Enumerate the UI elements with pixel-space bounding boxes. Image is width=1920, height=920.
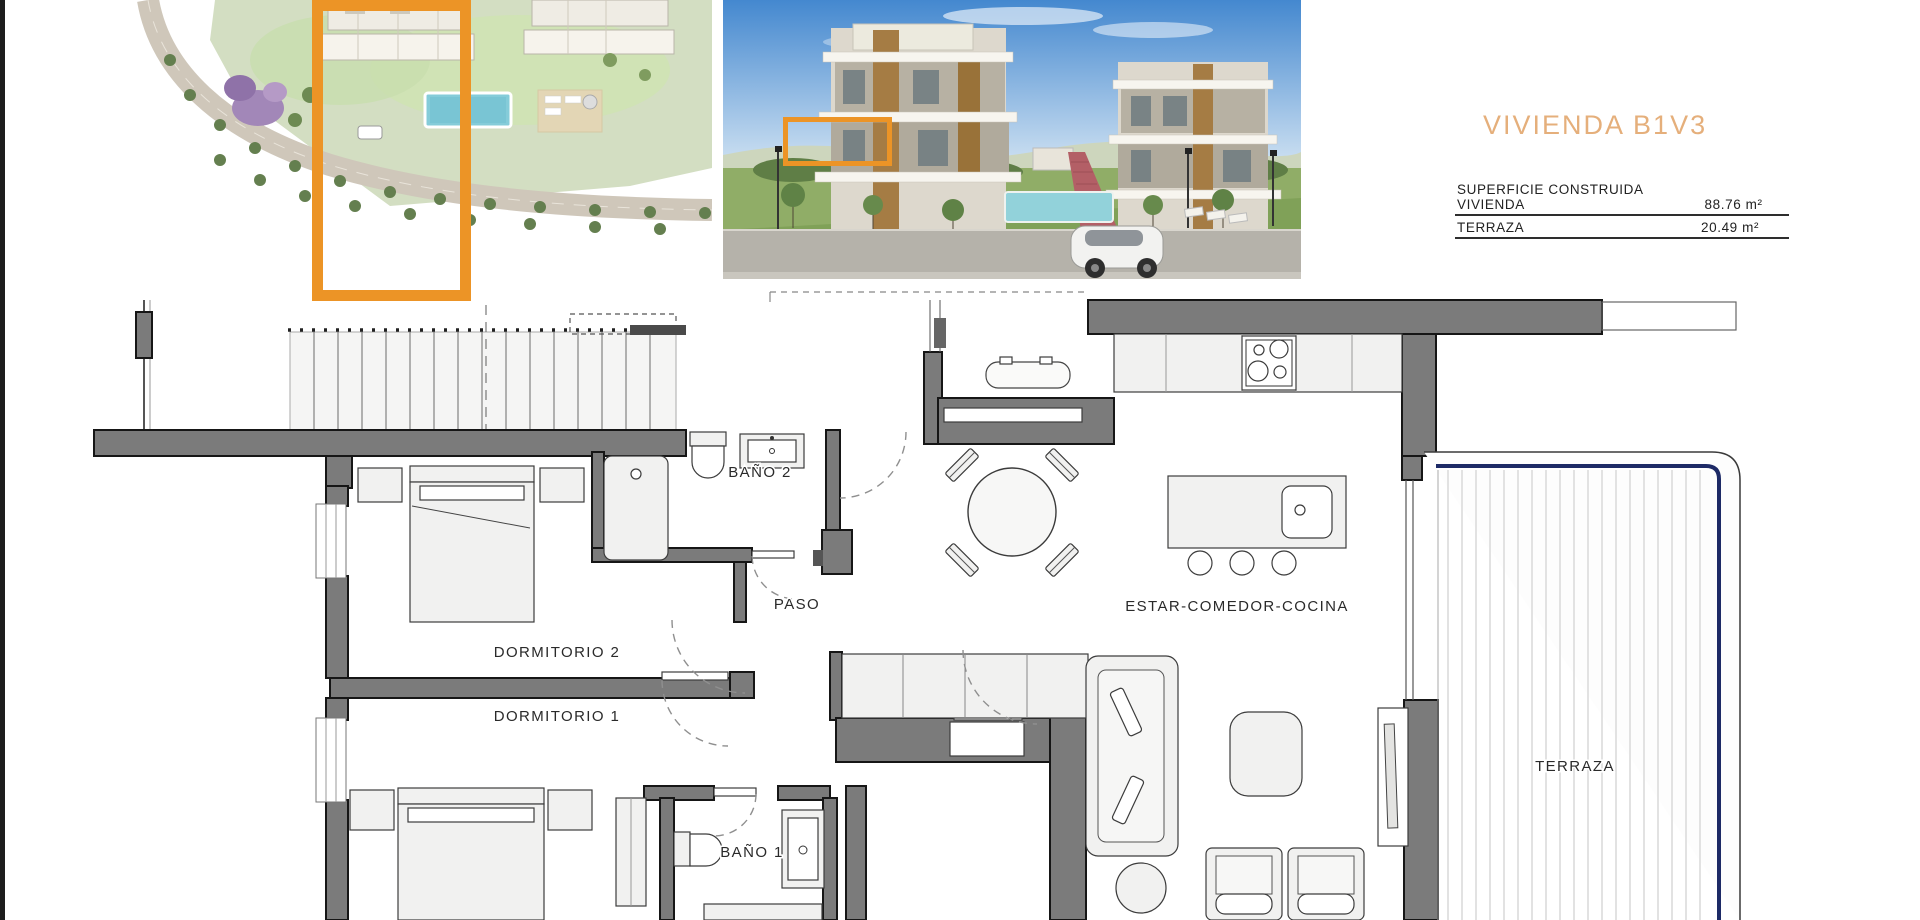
vanity-icon — [782, 810, 824, 888]
pergola-deck — [288, 305, 686, 430]
entry-niche — [944, 408, 1082, 422]
room-label-paso: PASO — [774, 596, 820, 613]
kitchen-island — [1168, 476, 1346, 575]
hall-niche — [950, 722, 1024, 756]
floor-plan: BAÑO 2 PASO DORMITORIO 2 DORMITORIO 1 BA… — [0, 0, 1920, 920]
entry-door — [930, 300, 946, 352]
room-label-dormitorio-1: DORMITORIO 1 — [494, 708, 621, 725]
shower-tray — [704, 904, 822, 920]
armchair — [1206, 848, 1282, 920]
bath1-fixtures — [674, 810, 824, 920]
dining-table — [945, 448, 1079, 577]
coffee-table — [1116, 863, 1166, 913]
room-label-terraza: TERRAZA — [1535, 758, 1615, 775]
plan-sheet: VIVIENDA B1V3 SUPERFICIE CONSTRUIDA VIVI… — [0, 0, 1920, 920]
terrace — [1424, 452, 1740, 920]
dorm1-wardrobe — [616, 798, 646, 906]
kitchen-counter — [1114, 334, 1402, 392]
room-label-bano-1: BAÑO 1 — [720, 844, 783, 861]
toilet-icon — [674, 832, 722, 866]
island-sink — [1282, 486, 1332, 538]
toilet-icon — [690, 432, 726, 478]
bath2-door-leaf — [752, 551, 794, 558]
room-label-estar-comedor-cocina: ESTAR-COMEDOR-COCINA — [1125, 598, 1349, 615]
stove-icon — [1242, 336, 1296, 390]
room-label-bano-2: BAÑO 2 — [728, 464, 791, 481]
stool — [1188, 551, 1212, 575]
window-left-2 — [316, 718, 346, 802]
entry-console — [986, 357, 1070, 388]
sofa — [1086, 656, 1178, 856]
ottoman — [1230, 712, 1302, 796]
parapet — [1602, 302, 1736, 330]
stool — [1272, 551, 1296, 575]
stool — [1230, 551, 1254, 575]
bed-dorm1 — [350, 788, 592, 920]
hall-closet — [842, 654, 1088, 718]
wall-detail-topleft — [136, 300, 152, 432]
bed-dorm2 — [358, 466, 584, 622]
window-left-1 — [316, 504, 346, 578]
armchair — [1288, 848, 1364, 920]
bath1-door-leaf — [714, 788, 756, 796]
room-label-dormitorio-2: DORMITORIO 2 — [494, 644, 621, 661]
vanity-icon — [740, 434, 804, 468]
terrace-glass-door — [1406, 480, 1413, 700]
tv-console — [1378, 708, 1408, 846]
